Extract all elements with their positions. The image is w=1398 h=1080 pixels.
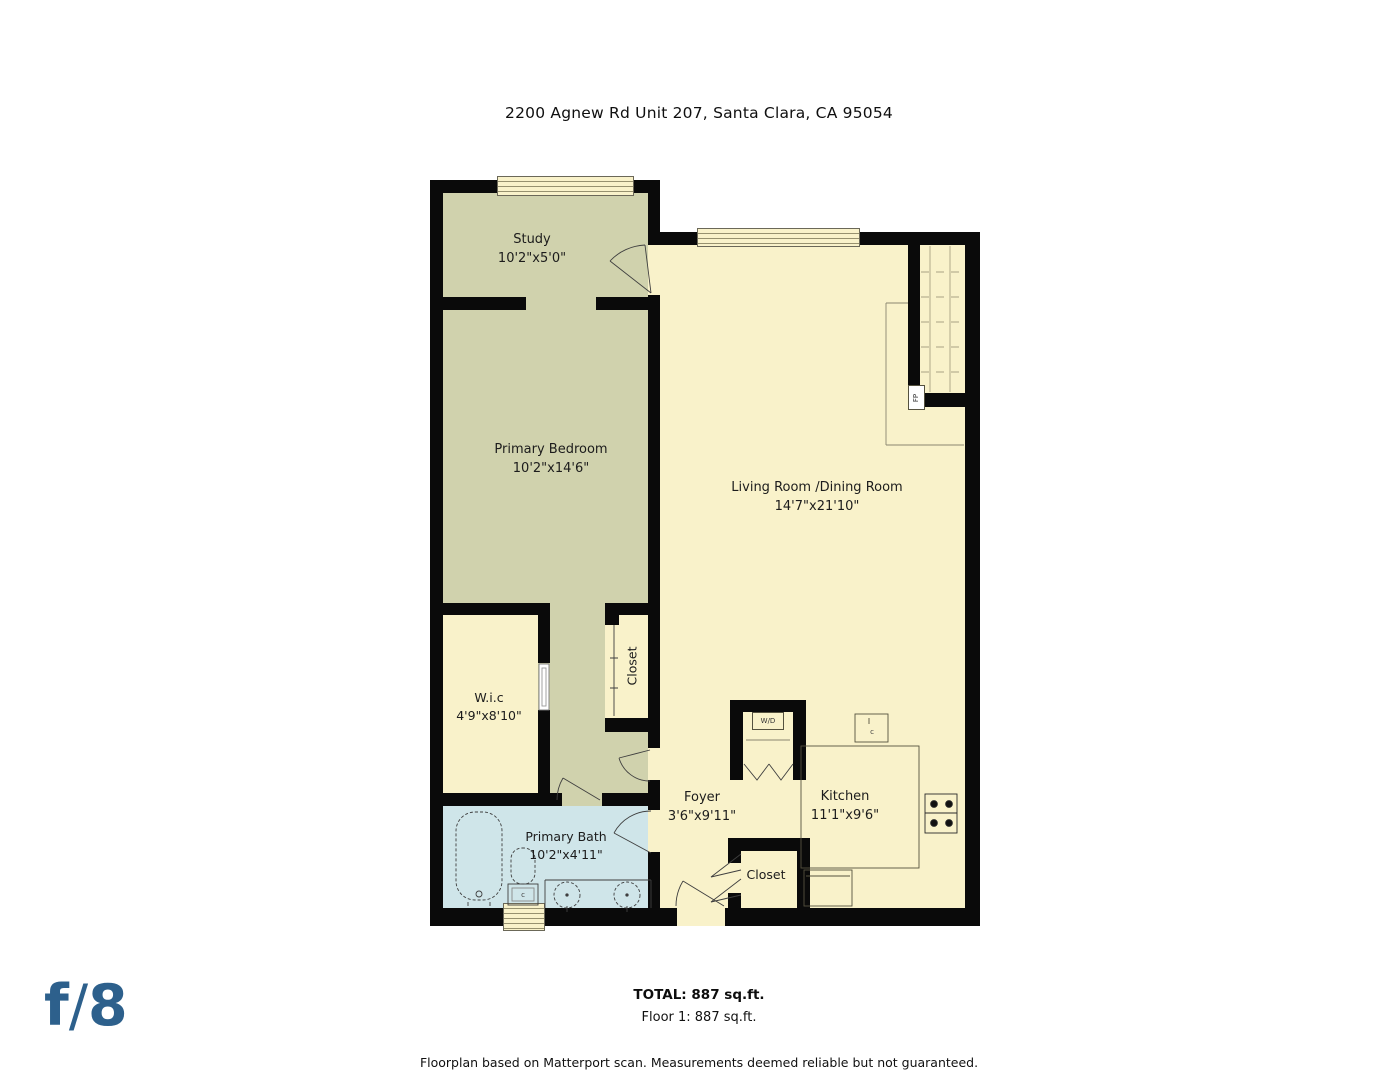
room-dims: 10'2"x14'6" xyxy=(494,460,607,479)
room-name: Foyer xyxy=(668,789,736,808)
fridge-icon xyxy=(804,870,852,906)
plan-linework xyxy=(0,0,1398,1080)
logo-eight: 8 xyxy=(88,973,128,1039)
fireplace-tag: FP xyxy=(908,385,925,410)
foyer-label: Foyer 3'6"x9'11" xyxy=(668,789,736,827)
study-label: Study 10'2"x5'0" xyxy=(498,231,566,269)
entry-door-arc xyxy=(676,881,724,906)
living-dining-label: Living Room /Dining Room 14'7"x21'10" xyxy=(731,479,902,517)
room-dims: 14'7"x21'10" xyxy=(731,498,902,517)
room-dims: 11'1"x9'6" xyxy=(811,807,879,826)
wd-bifold-door xyxy=(744,764,793,780)
f8-logo: f/8 xyxy=(44,978,128,1035)
fireplace-hearth-outline xyxy=(886,303,964,445)
bathtub-drain xyxy=(468,891,490,906)
logo-f: f xyxy=(44,973,69,1039)
room-dims: 3'6"x9'11" xyxy=(668,808,736,827)
wic-sliding-door xyxy=(539,664,549,710)
room-dims: 4'9"x8'10" xyxy=(456,707,522,725)
fireplace-tag-text: FP xyxy=(913,393,921,401)
entry-closet-label: Closet xyxy=(747,866,786,884)
sink-code: c xyxy=(870,728,874,736)
fireplace-hatch xyxy=(921,246,964,392)
stove-icon xyxy=(925,794,957,833)
room-name: W.i.c xyxy=(456,689,522,707)
primary-bedroom-label: Primary Bedroom 10'2"x14'6" xyxy=(494,441,607,479)
primary-bath-label: Primary Bath 10'2"x4'11" xyxy=(525,828,606,864)
total-area-text: TOTAL: 887 sq.ft. xyxy=(0,987,1398,1003)
kitchen-label: Kitchen 11'1"x9'6" xyxy=(811,788,879,826)
room-name: Living Room /Dining Room xyxy=(731,479,902,498)
room-name: Primary Bedroom xyxy=(494,441,607,460)
room-name: Study xyxy=(498,231,566,250)
washer-dryer-tag: W/D xyxy=(752,712,784,730)
entry-closet-bifold-door xyxy=(711,854,741,902)
floorplan-page: 2200 Agnew Rd Unit 207, Santa Clara, CA … xyxy=(0,0,1398,1080)
vanity-sinks-icon xyxy=(545,880,651,912)
hall-door-arc xyxy=(619,750,650,781)
hall-closet-sliding-door xyxy=(610,625,618,716)
wic-label: W.i.c 4'9"x8'10" xyxy=(456,689,522,725)
floor-area-text: Floor 1: 887 sq.ft. xyxy=(0,1010,1398,1025)
room-dims: 10'2"x4'11" xyxy=(525,846,606,864)
logo-slash: / xyxy=(69,973,88,1039)
page-title: 2200 Agnew Rd Unit 207, Santa Clara, CA … xyxy=(0,104,1398,122)
disclaimer-text: Floorplan based on Matterport scan. Meas… xyxy=(0,1055,1398,1070)
hall-closet-label: Closet xyxy=(625,647,640,686)
room-name: Primary Bath xyxy=(525,828,606,846)
room-name: Kitchen xyxy=(811,788,879,807)
bathtub-icon xyxy=(456,812,502,900)
room-dims: 10'2"x5'0" xyxy=(498,250,566,269)
study-door-arc xyxy=(610,245,651,293)
bath-door-arc xyxy=(614,811,651,853)
toilet-code: c xyxy=(521,891,525,899)
corridor-bath-door-arc xyxy=(557,778,600,800)
